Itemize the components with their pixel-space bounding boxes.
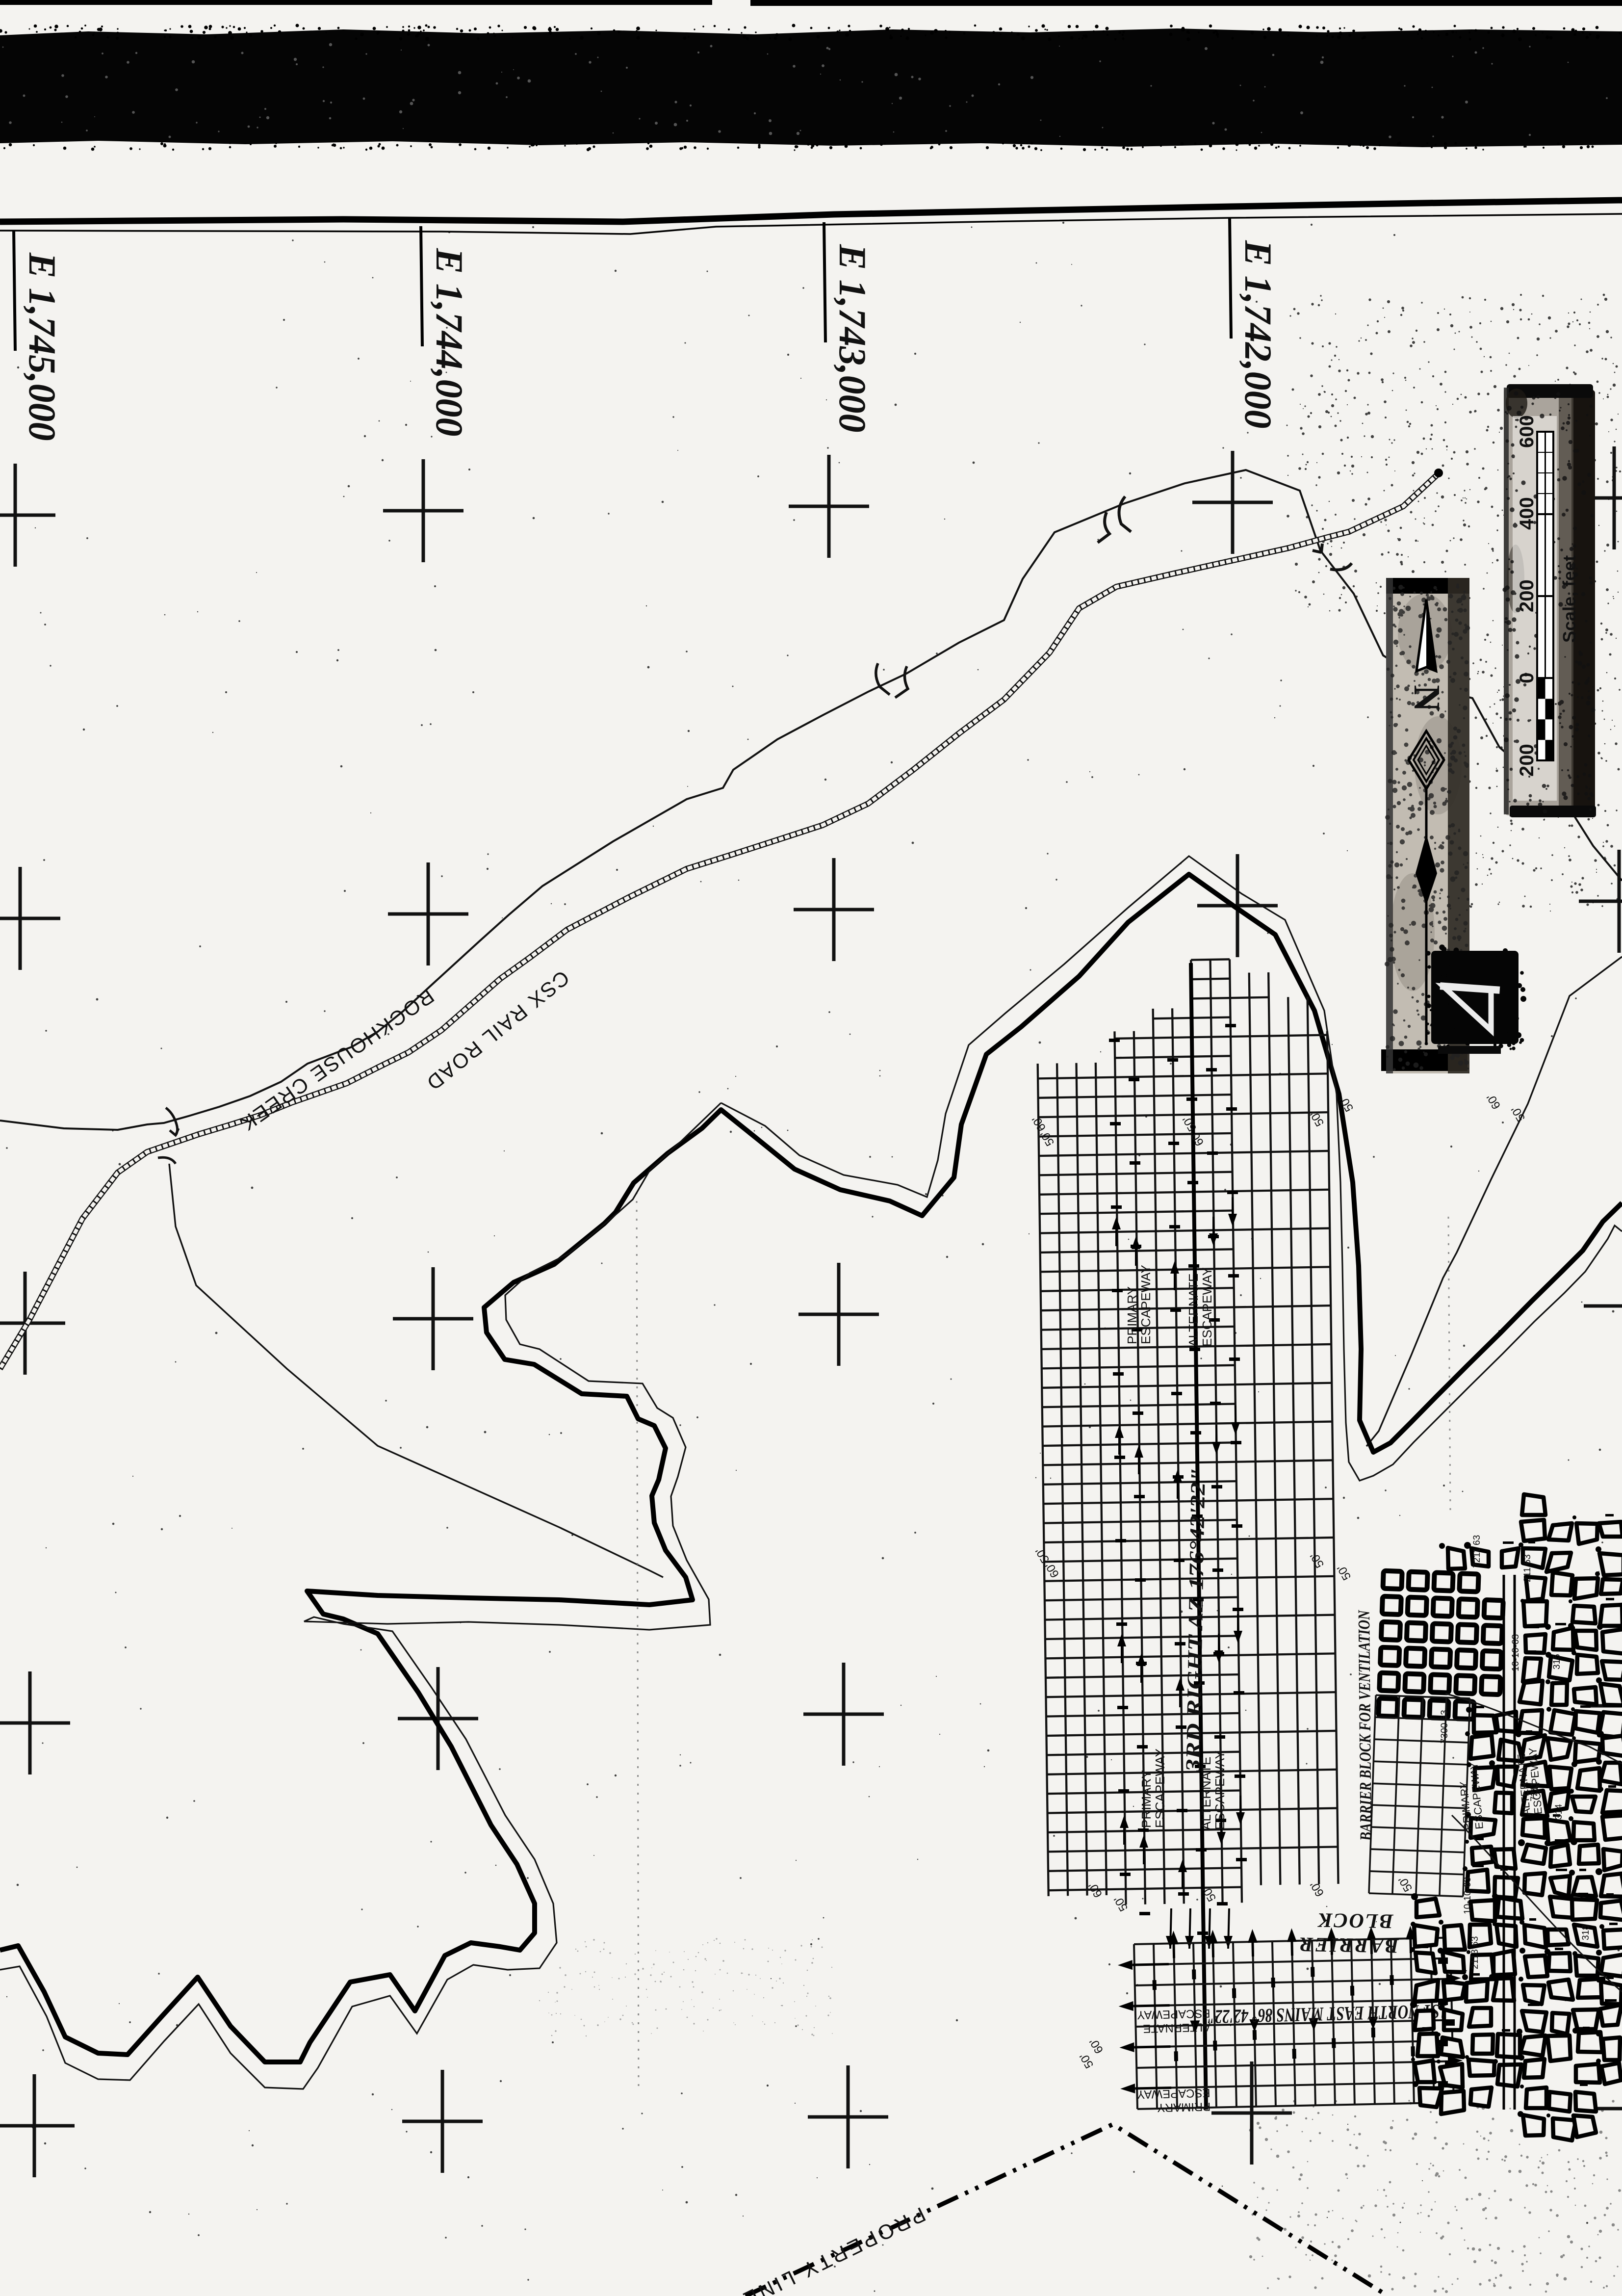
svg-text:E 1,744,000: E 1,744,000 [428, 248, 471, 437]
svg-text:E 1,742,000: E 1,742,000 [1237, 240, 1280, 429]
svg-text:315: 315 [1552, 1654, 1562, 1670]
svg-text:N: N [1406, 685, 1447, 712]
svg-text:0: 0 [1516, 673, 1538, 683]
svg-text:Scale, feet: Scale, feet [1559, 555, 1579, 643]
svg-text:314: 314 [1554, 1804, 1564, 1820]
svg-text:400: 400 [1516, 497, 1538, 530]
svg-text:600: 600 [1516, 415, 1538, 448]
svg-text:200: 200 [1516, 579, 1538, 612]
svg-text:E 1,745,000: E 1,745,000 [21, 252, 64, 441]
svg-text:E 1,743,000: E 1,743,000 [831, 244, 874, 433]
svg-text:ALTERNATEESCAPEWAY: ALTERNATEESCAPEWAY [1137, 2007, 1211, 2035]
svg-text:10-10-63: 10-10-63 [1463, 1877, 1473, 1914]
svg-text:2113 63: 2113 63 [1470, 1936, 1480, 1969]
svg-text:7211 63: 7211 63 [1472, 1535, 1482, 1568]
svg-text:7211: 7211 [1529, 1781, 1540, 1801]
svg-text:318: 318 [1581, 1925, 1591, 1940]
svg-text:200: 200 [1516, 744, 1538, 777]
svg-text:211 63: 211 63 [1522, 1554, 1533, 1582]
svg-text:7300 63: 7300 63 [1440, 1710, 1450, 1744]
svg-text:ALTERNATEESCAPEWAY: ALTERNATEESCAPEWAY [1186, 1267, 1214, 1347]
svg-text:10-10-63: 10-10-63 [1511, 1634, 1521, 1671]
